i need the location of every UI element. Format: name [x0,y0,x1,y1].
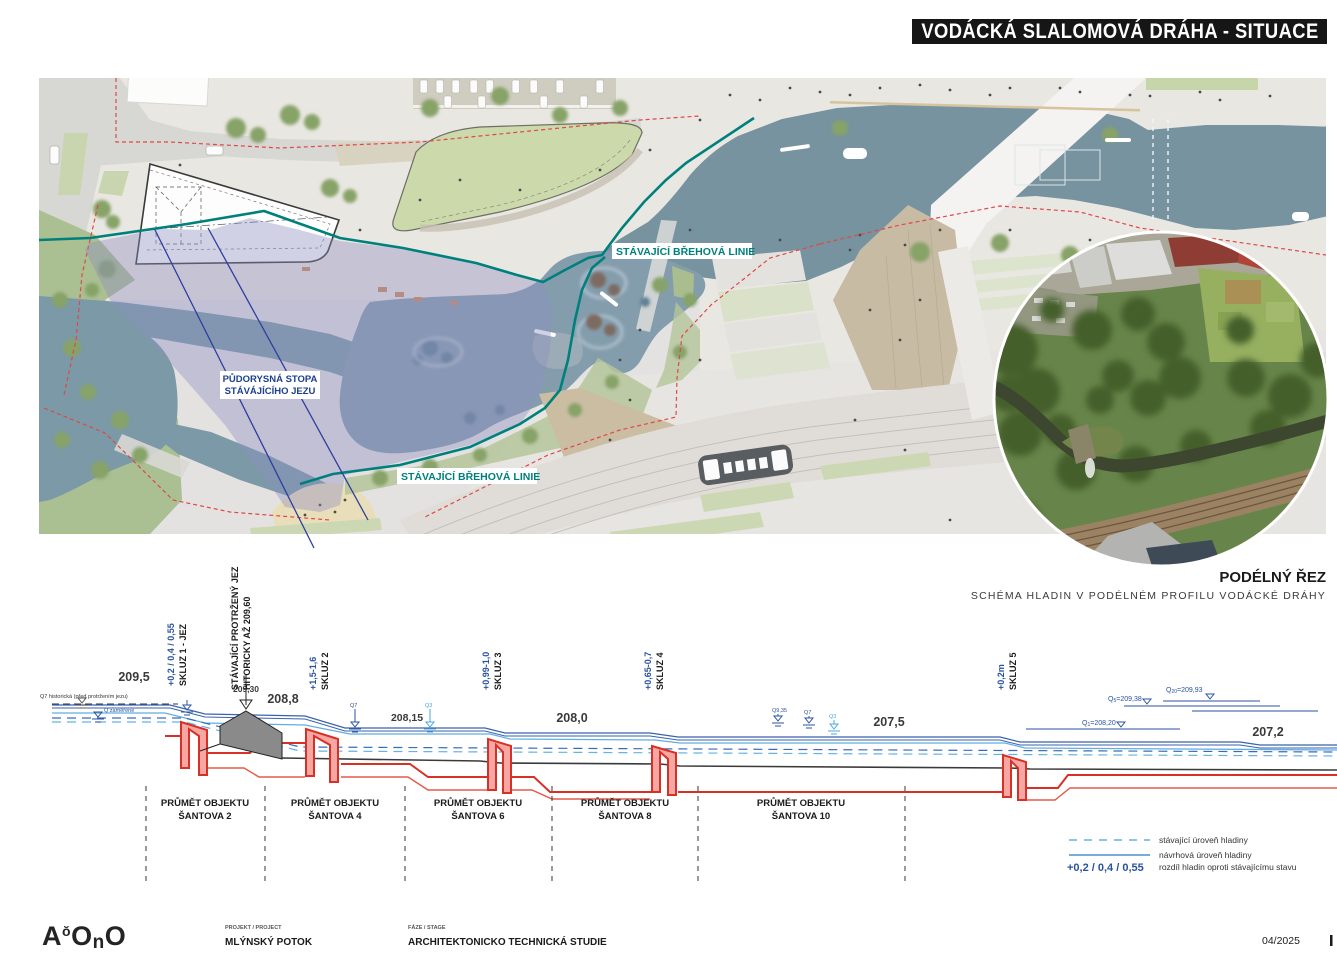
svg-text:ŠANTOVA 2: ŠANTOVA 2 [178,810,231,822]
svg-text:SKLUZ 5: SKLUZ 5 [1008,652,1018,690]
svg-text:+0,2 / 0,4 / 0,55: +0,2 / 0,4 / 0,55 [1067,862,1144,874]
svg-text:Q3: Q3 [425,703,432,709]
svg-text:STÁVAJÍCÍ BŘEHOVÁ LINIE: STÁVAJÍCÍ BŘEHOVÁ LINIE [616,245,755,258]
svg-text:SCHÉMA HLADIN V PODÉLNÉM PROFI: SCHÉMA HLADIN V PODÉLNÉM PROFILU VODÁCKÉ… [971,589,1326,602]
svg-text:Q7: Q7 [350,703,357,709]
svg-text:SKLUZ 3: SKLUZ 3 [493,652,503,690]
svg-text:+0,99-1,0: +0,99-1,0 [481,652,491,690]
svg-text:návrhová úroveň hladiny: návrhová úroveň hladiny [1159,850,1252,860]
svg-text:ŠANTOVA 6: ŠANTOVA 6 [451,810,504,822]
svg-text:+0,2 / 0,4 / 0,55: +0,2 / 0,4 / 0,55 [166,623,176,686]
svg-text:PRŮMĚT OBJEKTU: PRŮMĚT OBJEKTU [291,797,379,809]
svg-text:PRŮMĚT OBJEKTU: PRŮMĚT OBJEKTU [757,797,845,809]
svg-text:STÁVAJÍCÍ PROTRŽENÝ JEZ: STÁVAJÍCÍ PROTRŽENÝ JEZ [229,566,240,690]
svg-text:PRŮMĚT OBJEKTU: PRŮMĚT OBJEKTU [161,797,249,809]
svg-text:Q7 historická (před protržením: Q7 historická (před protržením jezu) [40,694,128,700]
svg-text:Q7: Q7 [804,710,811,716]
svg-text:Q5=209,38: Q5=209,38 [1108,696,1142,704]
svg-text:208,0: 208,0 [556,711,587,725]
svg-text:PRŮMĚT OBJEKTU: PRŮMĚT OBJEKTU [434,797,522,809]
svg-text:Q3: Q3 [829,714,836,720]
svg-text:AŏOnO: AŏOnO [42,921,126,953]
svg-text:Q1=208,20: Q1=208,20 [1082,720,1116,728]
svg-text:SKLUZ 1 - JEZ: SKLUZ 1 - JEZ [178,623,188,686]
svg-text:209,5: 209,5 [118,670,149,684]
svg-text:ŠANTOVA 4: ŠANTOVA 4 [308,810,362,822]
svg-text:PROJEKT / PROJECT: PROJEKT / PROJECT [225,925,282,931]
svg-text:208,8: 208,8 [267,692,298,706]
svg-text:+0,65-0,7: +0,65-0,7 [643,652,653,690]
svg-text:ARCHITEKTONICKO TECHNICKÁ STUD: ARCHITEKTONICKO TECHNICKÁ STUDIE [408,935,607,948]
svg-text:rozdíl hladin oproti stávající: rozdíl hladin oproti stávajícímu stavu [1159,862,1297,872]
svg-text:ŠANTOVA 10: ŠANTOVA 10 [772,810,830,822]
svg-text:Q20=209,93: Q20=209,93 [1166,687,1203,695]
svg-text:Q9,35: Q9,35 [772,708,787,714]
svg-text:MLÝNSKÝ POTOK: MLÝNSKÝ POTOK [225,935,313,948]
svg-text:SKLUZ 4: SKLUZ 4 [655,652,665,690]
svg-text:stávající úroveň hladiny: stávající úroveň hladiny [1159,835,1249,845]
svg-text:PODÉLNÝ ŘEZ: PODÉLNÝ ŘEZ [1219,568,1326,586]
svg-text:STÁVAJÍCÍ BŘEHOVÁ LINIE: STÁVAJÍCÍ BŘEHOVÁ LINIE [401,470,540,483]
svg-text:207,5: 207,5 [873,715,904,729]
svg-text:207,2: 207,2 [1252,725,1283,739]
svg-text:ŠANTOVA 8: ŠANTOVA 8 [598,810,651,822]
svg-text:+0,2m: +0,2m [996,664,1006,690]
svg-text:FÁZE / STAGE: FÁZE / STAGE [408,924,446,931]
svg-text:+1,5-1,6: +1,5-1,6 [308,657,318,690]
svg-text:SKLUZ 2: SKLUZ 2 [320,652,330,690]
svg-text:STÁVÁJÍCÍHO JEZU: STÁVÁJÍCÍHO JEZU [225,386,316,397]
svg-text:HITORICKY AŽ 209,60: HITORICKY AŽ 209,60 [241,597,252,690]
svg-text:PŮDORYSNÁ STOPA: PŮDORYSNÁ STOPA [223,373,318,385]
svg-text:208,15: 208,15 [391,712,423,724]
svg-text:PRŮMĚT OBJEKTU: PRŮMĚT OBJEKTU [581,797,669,809]
svg-text:04/2025: 04/2025 [1262,935,1300,947]
svg-text:Q zaměřené: Q zaměřené [104,708,134,714]
svg-text:VODÁCKÁ SLALOMOVÁ DRÁHA - SITU: VODÁCKÁ SLALOMOVÁ DRÁHA - SITUACE [921,19,1318,43]
